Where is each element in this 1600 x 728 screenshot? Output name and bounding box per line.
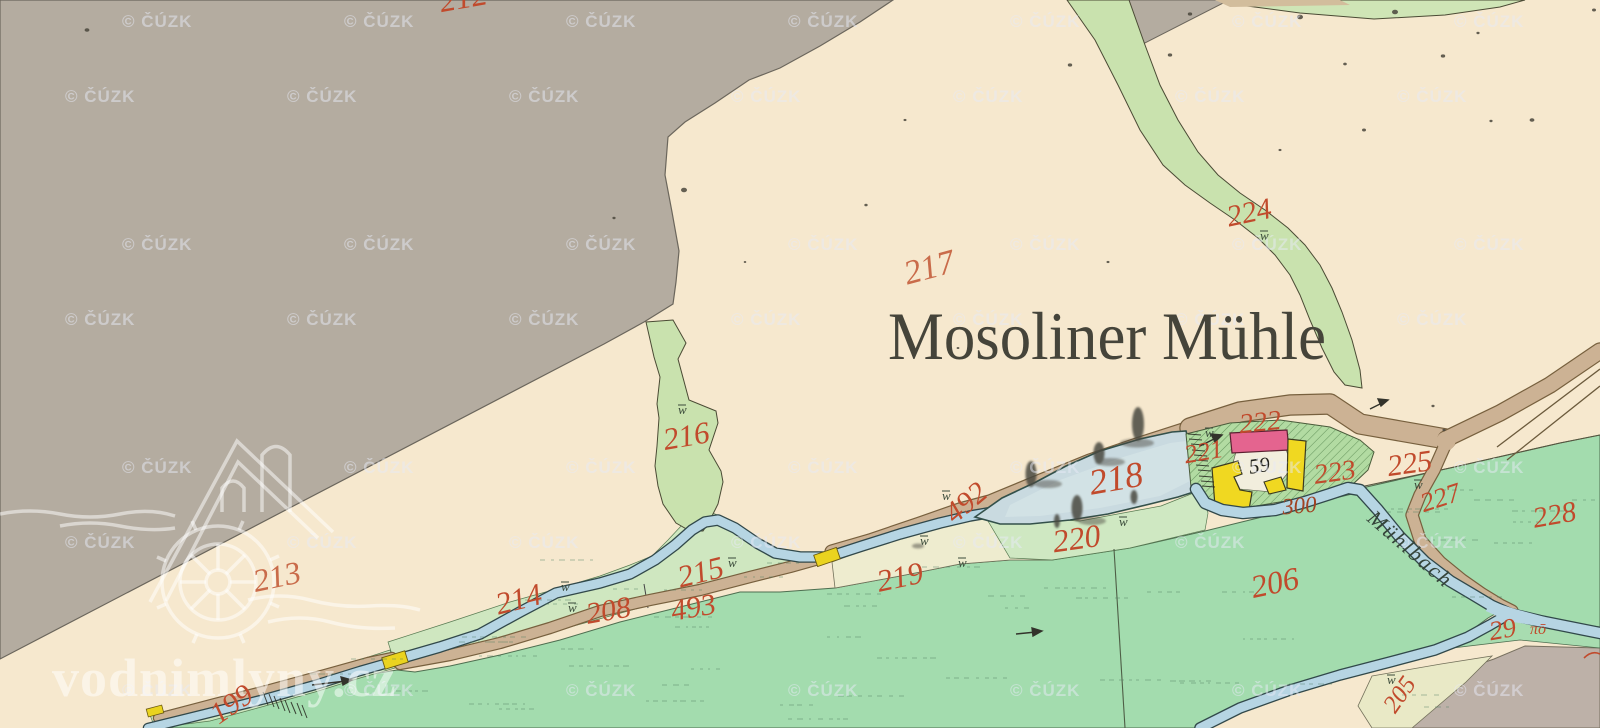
svg-text:300: 300 [1280,492,1318,520]
svg-text:© ČÚZK: © ČÚZK [953,533,1023,552]
svg-text:© ČÚZK: © ČÚZK [566,12,636,31]
svg-text:Mosoliner Mühle: Mosoliner Mühle [888,298,1326,374]
svg-text:πō: πō [1530,621,1546,638]
svg-text:© ČÚZK: © ČÚZK [788,12,858,31]
svg-text:© ČÚZK: © ČÚZK [65,87,135,106]
svg-text:w: w [1119,514,1128,529]
svg-text:© ČÚZK: © ČÚZK [65,310,135,329]
svg-text:© ČÚZK: © ČÚZK [953,87,1023,106]
svg-text:© ČÚZK: © ČÚZK [566,681,636,700]
svg-text:© ČÚZK: © ČÚZK [344,235,414,254]
svg-text:© ČÚZK: © ČÚZK [1232,681,1302,700]
svg-text:© ČÚZK: © ČÚZK [1454,12,1524,31]
svg-text:© ČÚZK: © ČÚZK [1175,87,1245,106]
svg-text:© ČÚZK: © ČÚZK [1010,12,1080,31]
svg-text:© ČÚZK: © ČÚZK [1175,533,1245,552]
svg-text:© ČÚZK: © ČÚZK [287,310,357,329]
svg-text:© ČÚZK: © ČÚZK [509,533,579,552]
svg-text:© ČÚZK: © ČÚZK [1010,681,1080,700]
svg-text:w: w [561,579,570,594]
svg-text:© ČÚZK: © ČÚZK [566,235,636,254]
svg-text:© ČÚZK: © ČÚZK [1010,458,1080,477]
svg-text:© ČÚZK: © ČÚZK [1232,12,1302,31]
svg-text:© ČÚZK: © ČÚZK [122,235,192,254]
svg-text:© ČÚZK: © ČÚZK [1397,87,1467,106]
svg-text:220: 220 [1050,517,1103,559]
svg-text:223: 223 [1312,454,1358,491]
svg-text:w: w [958,555,967,570]
svg-text:w: w [920,533,929,548]
svg-text:© ČÚZK: © ČÚZK [788,681,858,700]
svg-text:© ČÚZK: © ČÚZK [287,87,357,106]
svg-text:© ČÚZK: © ČÚZK [1232,458,1302,477]
svg-text:© ČÚZK: © ČÚZK [1010,235,1080,254]
svg-text:© ČÚZK: © ČÚZK [65,533,135,552]
svg-text:w: w [728,555,737,570]
svg-text:© ČÚZK: © ČÚZK [509,87,579,106]
svg-text:© ČÚZK: © ČÚZK [122,458,192,477]
svg-text:© ČÚZK: © ČÚZK [731,310,801,329]
svg-text:© ČÚZK: © ČÚZK [566,458,636,477]
svg-text:© ČÚZK: © ČÚZK [788,235,858,254]
svg-text:w: w [568,600,577,615]
svg-text:w: w [678,402,687,417]
svg-text:© ČÚZK: © ČÚZK [1454,681,1524,700]
svg-text:© ČÚZK: © ČÚZK [1454,458,1524,477]
svg-text:222: 222 [1238,405,1283,440]
svg-text:© ČÚZK: © ČÚZK [344,12,414,31]
svg-text:© ČÚZK: © ČÚZK [344,458,414,477]
svg-text:© ČÚZK: © ČÚZK [122,12,192,31]
svg-text:© ČÚZK: © ČÚZK [731,87,801,106]
svg-text:29: 29 [1487,612,1519,646]
svg-text:© ČÚZK: © ČÚZK [731,533,801,552]
svg-text:© ČÚZK: © ČÚZK [1397,310,1467,329]
svg-text:© ČÚZK: © ČÚZK [1454,235,1524,254]
svg-text:© ČÚZK: © ČÚZK [1232,235,1302,254]
svg-text:© ČÚZK: © ČÚZK [509,310,579,329]
svg-text:225: 225 [1385,444,1434,483]
svg-text:© ČÚZK: © ČÚZK [287,533,357,552]
svg-text:© ČÚZK: © ČÚZK [788,458,858,477]
